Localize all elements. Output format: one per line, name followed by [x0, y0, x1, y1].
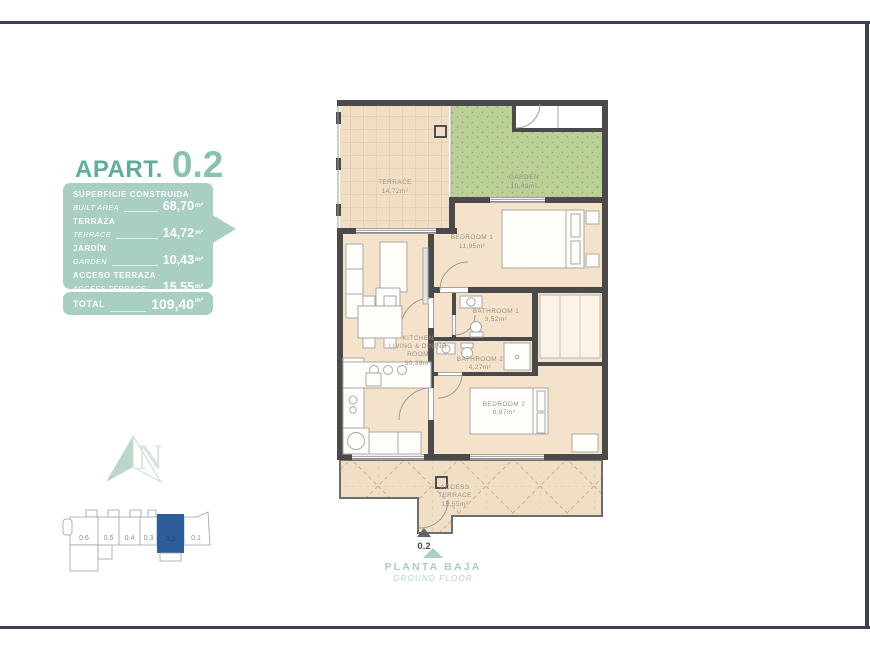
- north-letter: N: [137, 437, 163, 477]
- keyplan-balcony: [148, 510, 156, 517]
- bath1-toilet: [471, 322, 482, 333]
- kitchen-counter-bottom: [369, 432, 421, 454]
- apartment-title: APART. 0.2: [75, 144, 223, 186]
- summary-label-en: BUILT AREA: [73, 201, 119, 214]
- bathroom1-label: BATHROOM 1: [473, 308, 520, 315]
- keyplan-balcony: [108, 510, 119, 517]
- keyplan-unit-02-highlight: [157, 514, 184, 553]
- tv-unit: [423, 248, 428, 304]
- chair: [363, 338, 375, 348]
- summary-label-en: TERRACE: [73, 228, 111, 241]
- kitchen-sink: [366, 373, 381, 386]
- keyplan-unit-label: 0.1: [191, 535, 201, 542]
- entry-alcove-floor: [512, 103, 602, 131]
- garden-label: GARDEN: [509, 174, 539, 181]
- bathroom1-area: 3,52m²: [485, 316, 508, 323]
- nightstand: [586, 211, 599, 224]
- dining-table: [358, 306, 402, 338]
- terrace-area: 14,72m²: [382, 188, 409, 195]
- compass-needle-left: [106, 436, 133, 482]
- summary-label-en: GARDEN: [73, 255, 107, 268]
- column: [435, 126, 446, 137]
- summary-row-garden: JARDÍN GARDEN 10,43 m²: [73, 244, 203, 269]
- sink-bowl: [350, 407, 356, 413]
- chair: [363, 296, 375, 306]
- north-compass: N: [106, 436, 163, 482]
- keyplan-stairs: [70, 545, 98, 571]
- total-row: TOTAL 109,40 m²: [63, 292, 213, 315]
- kitchen-label-line1: KITCHEN: [402, 335, 433, 342]
- keyplan-unit-label-highlighted: 0.2: [166, 536, 176, 543]
- apartment-title-prefix: APART.: [75, 156, 163, 184]
- bath1-toilet-tank: [470, 332, 483, 337]
- area-summary-panel: SUPERFICIE CONSTRUIDA BUILT AREA 68,70 m…: [63, 183, 213, 289]
- floor-plan-drawing: TERRACE 14,72m² GARDEN 10,43m² BEDROOM 1…: [336, 100, 608, 552]
- terrace-label: TERRACE: [378, 179, 412, 186]
- bedroom1-label: BEDROOM 1: [451, 234, 494, 241]
- summary-unit: m²: [195, 226, 203, 239]
- rug: [380, 242, 407, 292]
- keyplan-balcony: [130, 510, 141, 517]
- shower-drain: [515, 355, 519, 359]
- summary-unit: m²: [195, 199, 203, 212]
- keyplan-unit-label: 0.4: [125, 535, 135, 542]
- summary-unit: m²: [195, 253, 203, 266]
- leader-line: [124, 211, 158, 212]
- nightstand: [586, 254, 599, 267]
- floor-name-es: PLANTA BAJA: [384, 561, 481, 573]
- summary-value: 10,43: [163, 254, 194, 267]
- kitchen-label-line3: ROOM: [407, 351, 429, 358]
- summary-row-built-area: SUPERFICIE CONSTRUIDA BUILT AREA 68,70 m…: [73, 190, 203, 215]
- leader-line: [112, 265, 158, 266]
- hob-burner: [384, 366, 393, 375]
- dresser: [572, 434, 598, 452]
- total-value: 109,40: [151, 296, 194, 312]
- access-terrace-label-line2: TERRACE: [438, 492, 472, 499]
- kitchen-label-line2: LIVING & DINING: [389, 343, 447, 350]
- bathroom2-label: BATHROOM 2: [457, 356, 504, 363]
- plan-graphics: N 0.6 0.5 0.4 0.3 0.2 0.1: [0, 0, 870, 652]
- leader-line: [110, 311, 146, 312]
- keyplan-balcony: [86, 510, 97, 517]
- bedroom2-label: BEDROOM 2: [483, 401, 526, 408]
- key-plan: 0.6 0.5 0.4 0.3 0.2 0.1: [63, 510, 210, 571]
- total-unit: m²: [195, 297, 203, 304]
- keyplan-unit-label: 0.5: [104, 535, 114, 542]
- apartment-title-unit: 0.2: [172, 144, 223, 186]
- closet: [540, 295, 600, 358]
- pillow: [537, 413, 545, 433]
- kitchen-area: 30,29m²: [405, 360, 432, 367]
- keyplan-west-wing: [63, 519, 72, 535]
- bath1-sink-bowl: [467, 298, 475, 306]
- bedroom2-area: 8,97m²: [493, 409, 516, 416]
- summary-value: 68,70: [163, 200, 194, 213]
- chair: [384, 296, 396, 306]
- floor-name-en: GROUND FLOOR: [393, 574, 473, 583]
- pillow: [537, 391, 545, 411]
- keyplan-unit-label: 0.3: [144, 535, 154, 542]
- pillow: [571, 241, 580, 264]
- bathroom2-area: 4,27m²: [469, 364, 492, 371]
- washer-drum: [348, 433, 365, 450]
- total-label: TOTAL: [73, 299, 105, 309]
- leader-line: [116, 238, 158, 239]
- keyplan-stub: [160, 553, 181, 561]
- keyplan-unit-label: 0.6: [79, 535, 89, 542]
- summary-value: 14,72: [163, 227, 194, 240]
- pillow: [571, 214, 580, 237]
- brochure-page: N 0.6 0.5 0.4 0.3 0.2 0.1: [0, 0, 870, 652]
- sink-bowl: [349, 396, 357, 404]
- access-terrace-label-line1: ACCESS: [440, 484, 469, 491]
- bedroom1-area: 11,95m²: [459, 243, 486, 250]
- garden-area: 10,43m²: [511, 183, 538, 190]
- terrace-tiles: [340, 103, 449, 228]
- access-terrace-area: 15,55m²: [442, 501, 469, 508]
- entrance-marker-label: 0.2: [417, 541, 430, 552]
- panel-arrow-icon: [211, 214, 236, 244]
- keyplan-stairs: [98, 545, 112, 559]
- summary-row-terrace: TERRAZA TERRACE 14,72 m²: [73, 217, 203, 242]
- floor-caption: PLANTA BAJA GROUND FLOOR: [384, 548, 481, 583]
